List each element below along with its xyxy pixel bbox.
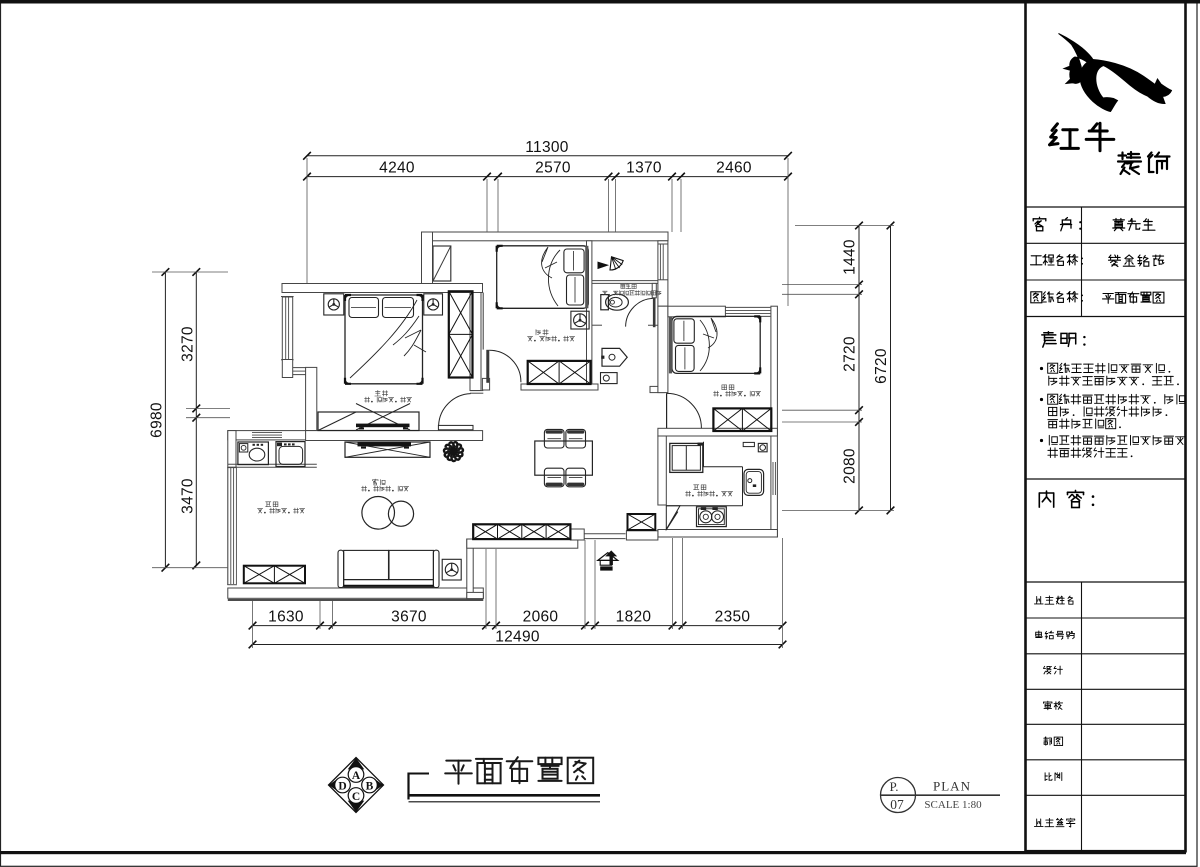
svg-text:B: B <box>366 780 374 792</box>
svg-text:SCALE 1:80: SCALE 1:80 <box>924 799 982 811</box>
svg-text:6720: 6720 <box>873 348 890 384</box>
svg-text:2570: 2570 <box>535 160 571 177</box>
svg-text:1440: 1440 <box>842 239 859 275</box>
svg-text:12490: 12490 <box>495 629 540 646</box>
svg-text:3670: 3670 <box>391 609 427 626</box>
svg-text:2060: 2060 <box>523 609 559 626</box>
svg-text:1820: 1820 <box>616 609 652 626</box>
svg-text:3270: 3270 <box>180 326 197 362</box>
svg-text:07: 07 <box>890 797 904 812</box>
svg-text:A: A <box>352 770 361 782</box>
svg-text:11300: 11300 <box>525 139 569 156</box>
svg-text:C: C <box>352 791 360 803</box>
svg-text:4240: 4240 <box>379 160 415 177</box>
svg-text:2720: 2720 <box>842 336 859 372</box>
svg-text:2460: 2460 <box>716 160 752 177</box>
svg-text:1630: 1630 <box>268 609 304 626</box>
svg-text:2350: 2350 <box>715 609 751 626</box>
svg-text:1370: 1370 <box>626 160 662 177</box>
svg-text:D: D <box>338 780 346 792</box>
svg-text:P.: P. <box>889 779 898 794</box>
svg-text:PLAN: PLAN <box>933 779 971 794</box>
svg-text:6980: 6980 <box>149 402 166 438</box>
svg-text:2080: 2080 <box>842 448 859 484</box>
svg-text:3470: 3470 <box>180 478 197 514</box>
